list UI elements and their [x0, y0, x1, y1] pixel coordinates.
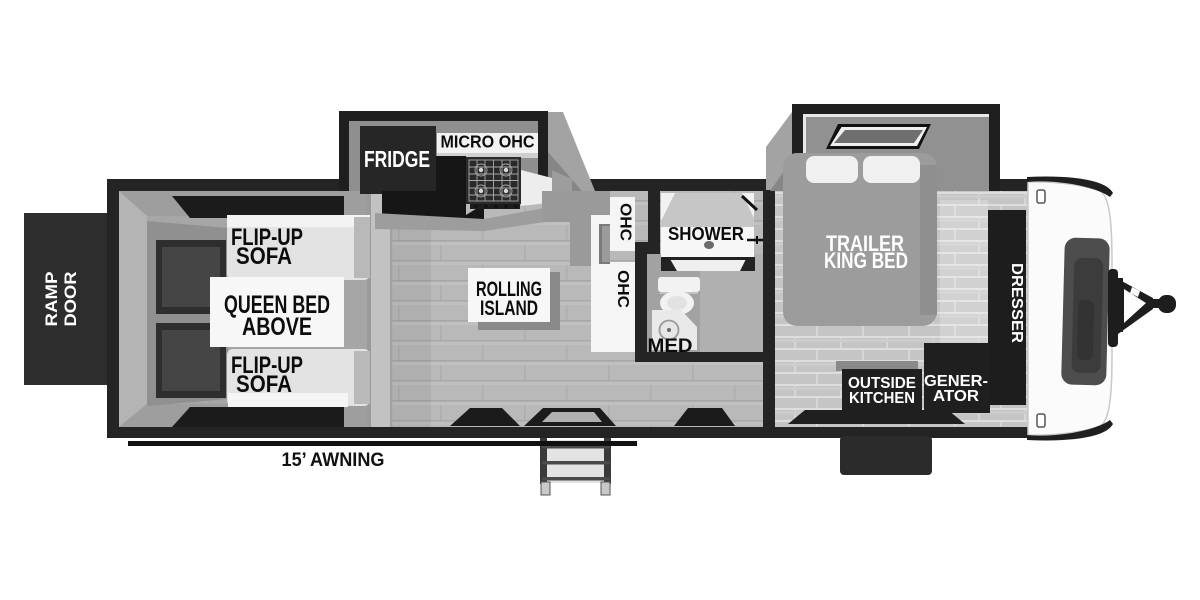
- svg-text:ISLAND: ISLAND: [480, 297, 538, 320]
- svg-text:KITCHEN: KITCHEN: [849, 390, 915, 407]
- svg-text:SHOWER: SHOWER: [668, 224, 744, 244]
- svg-text:ATOR: ATOR: [933, 388, 979, 405]
- svg-text:SOFA: SOFA: [236, 243, 292, 270]
- svg-text:FRIDGE: FRIDGE: [364, 146, 430, 172]
- svg-text:RAMP: RAMP: [42, 272, 61, 327]
- svg-text:15’ AWNING: 15’ AWNING: [282, 450, 385, 471]
- svg-text:DOOR: DOOR: [61, 272, 80, 327]
- svg-text:MICRO OHC: MICRO OHC: [441, 132, 535, 152]
- svg-text:ABOVE: ABOVE: [242, 313, 312, 341]
- svg-text:DRESSER: DRESSER: [1008, 263, 1025, 343]
- svg-text:KING BED: KING BED: [824, 248, 908, 273]
- svg-text:OHC: OHC: [617, 203, 634, 241]
- svg-text:OHC: OHC: [614, 270, 631, 308]
- svg-text:SOFA: SOFA: [236, 371, 292, 398]
- svg-text:MED: MED: [648, 335, 693, 357]
